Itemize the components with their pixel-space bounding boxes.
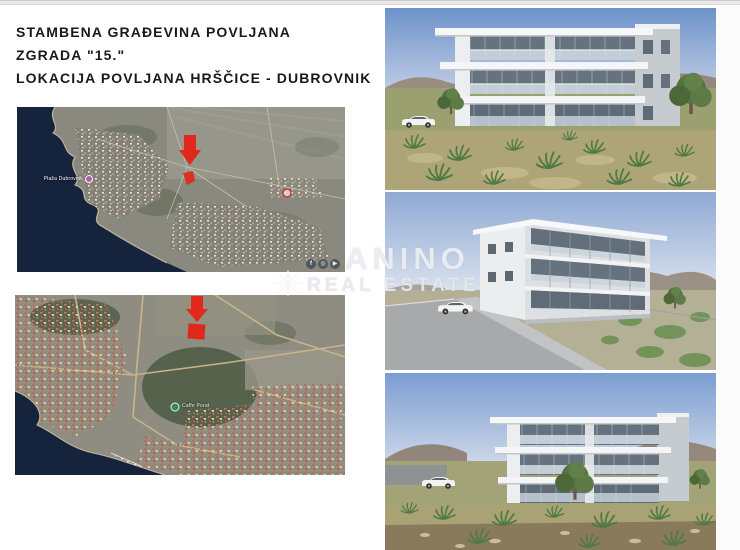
brochure-page: STAMBENA GRAĐEVINA POVLJANA ZGRADA "15."… — [0, 0, 740, 550]
satellite-map-wide-graphic — [17, 107, 345, 272]
building-render-front-graphic — [385, 8, 716, 190]
apartment-building — [435, 24, 680, 126]
satellite-map-close-graphic — [15, 295, 345, 475]
title-line-1: STAMBENA GRAĐEVINA POVLJANA — [16, 21, 371, 44]
red-plot-rectangle — [187, 323, 205, 339]
title-line-2: ZGRADA "15." — [16, 44, 371, 67]
beach-label: Plaža Dubrovnik — [44, 176, 83, 182]
title-block: STAMBENA GRAĐEVINA POVLJANA ZGRADA "15."… — [16, 21, 371, 90]
snowflake-logo-icon — [274, 269, 302, 297]
green-cafe-marker — [171, 403, 179, 411]
purple-beach-marker — [86, 176, 93, 183]
window-top-edge — [0, 0, 740, 5]
right-margin — [716, 6, 740, 550]
building-render-garden — [385, 373, 716, 550]
apartment-building — [473, 219, 667, 324]
building-render-street — [385, 192, 716, 370]
cafe-label: Caffe Porat — [182, 403, 209, 409]
building-render-garden-graphic — [385, 373, 716, 550]
red-poi-marker — [283, 189, 291, 197]
dirt-band — [385, 521, 716, 550]
building-render-front — [385, 8, 716, 190]
title-line-3: LOKACIJA POVLJANA HRŠČICE - DUBROVNIK — [16, 67, 371, 90]
satellite-map-wide: Plaža Dubrovnik — [17, 107, 345, 272]
satellite-map-close: Caffe Porat — [15, 295, 345, 475]
building-render-street-graphic — [385, 192, 716, 370]
